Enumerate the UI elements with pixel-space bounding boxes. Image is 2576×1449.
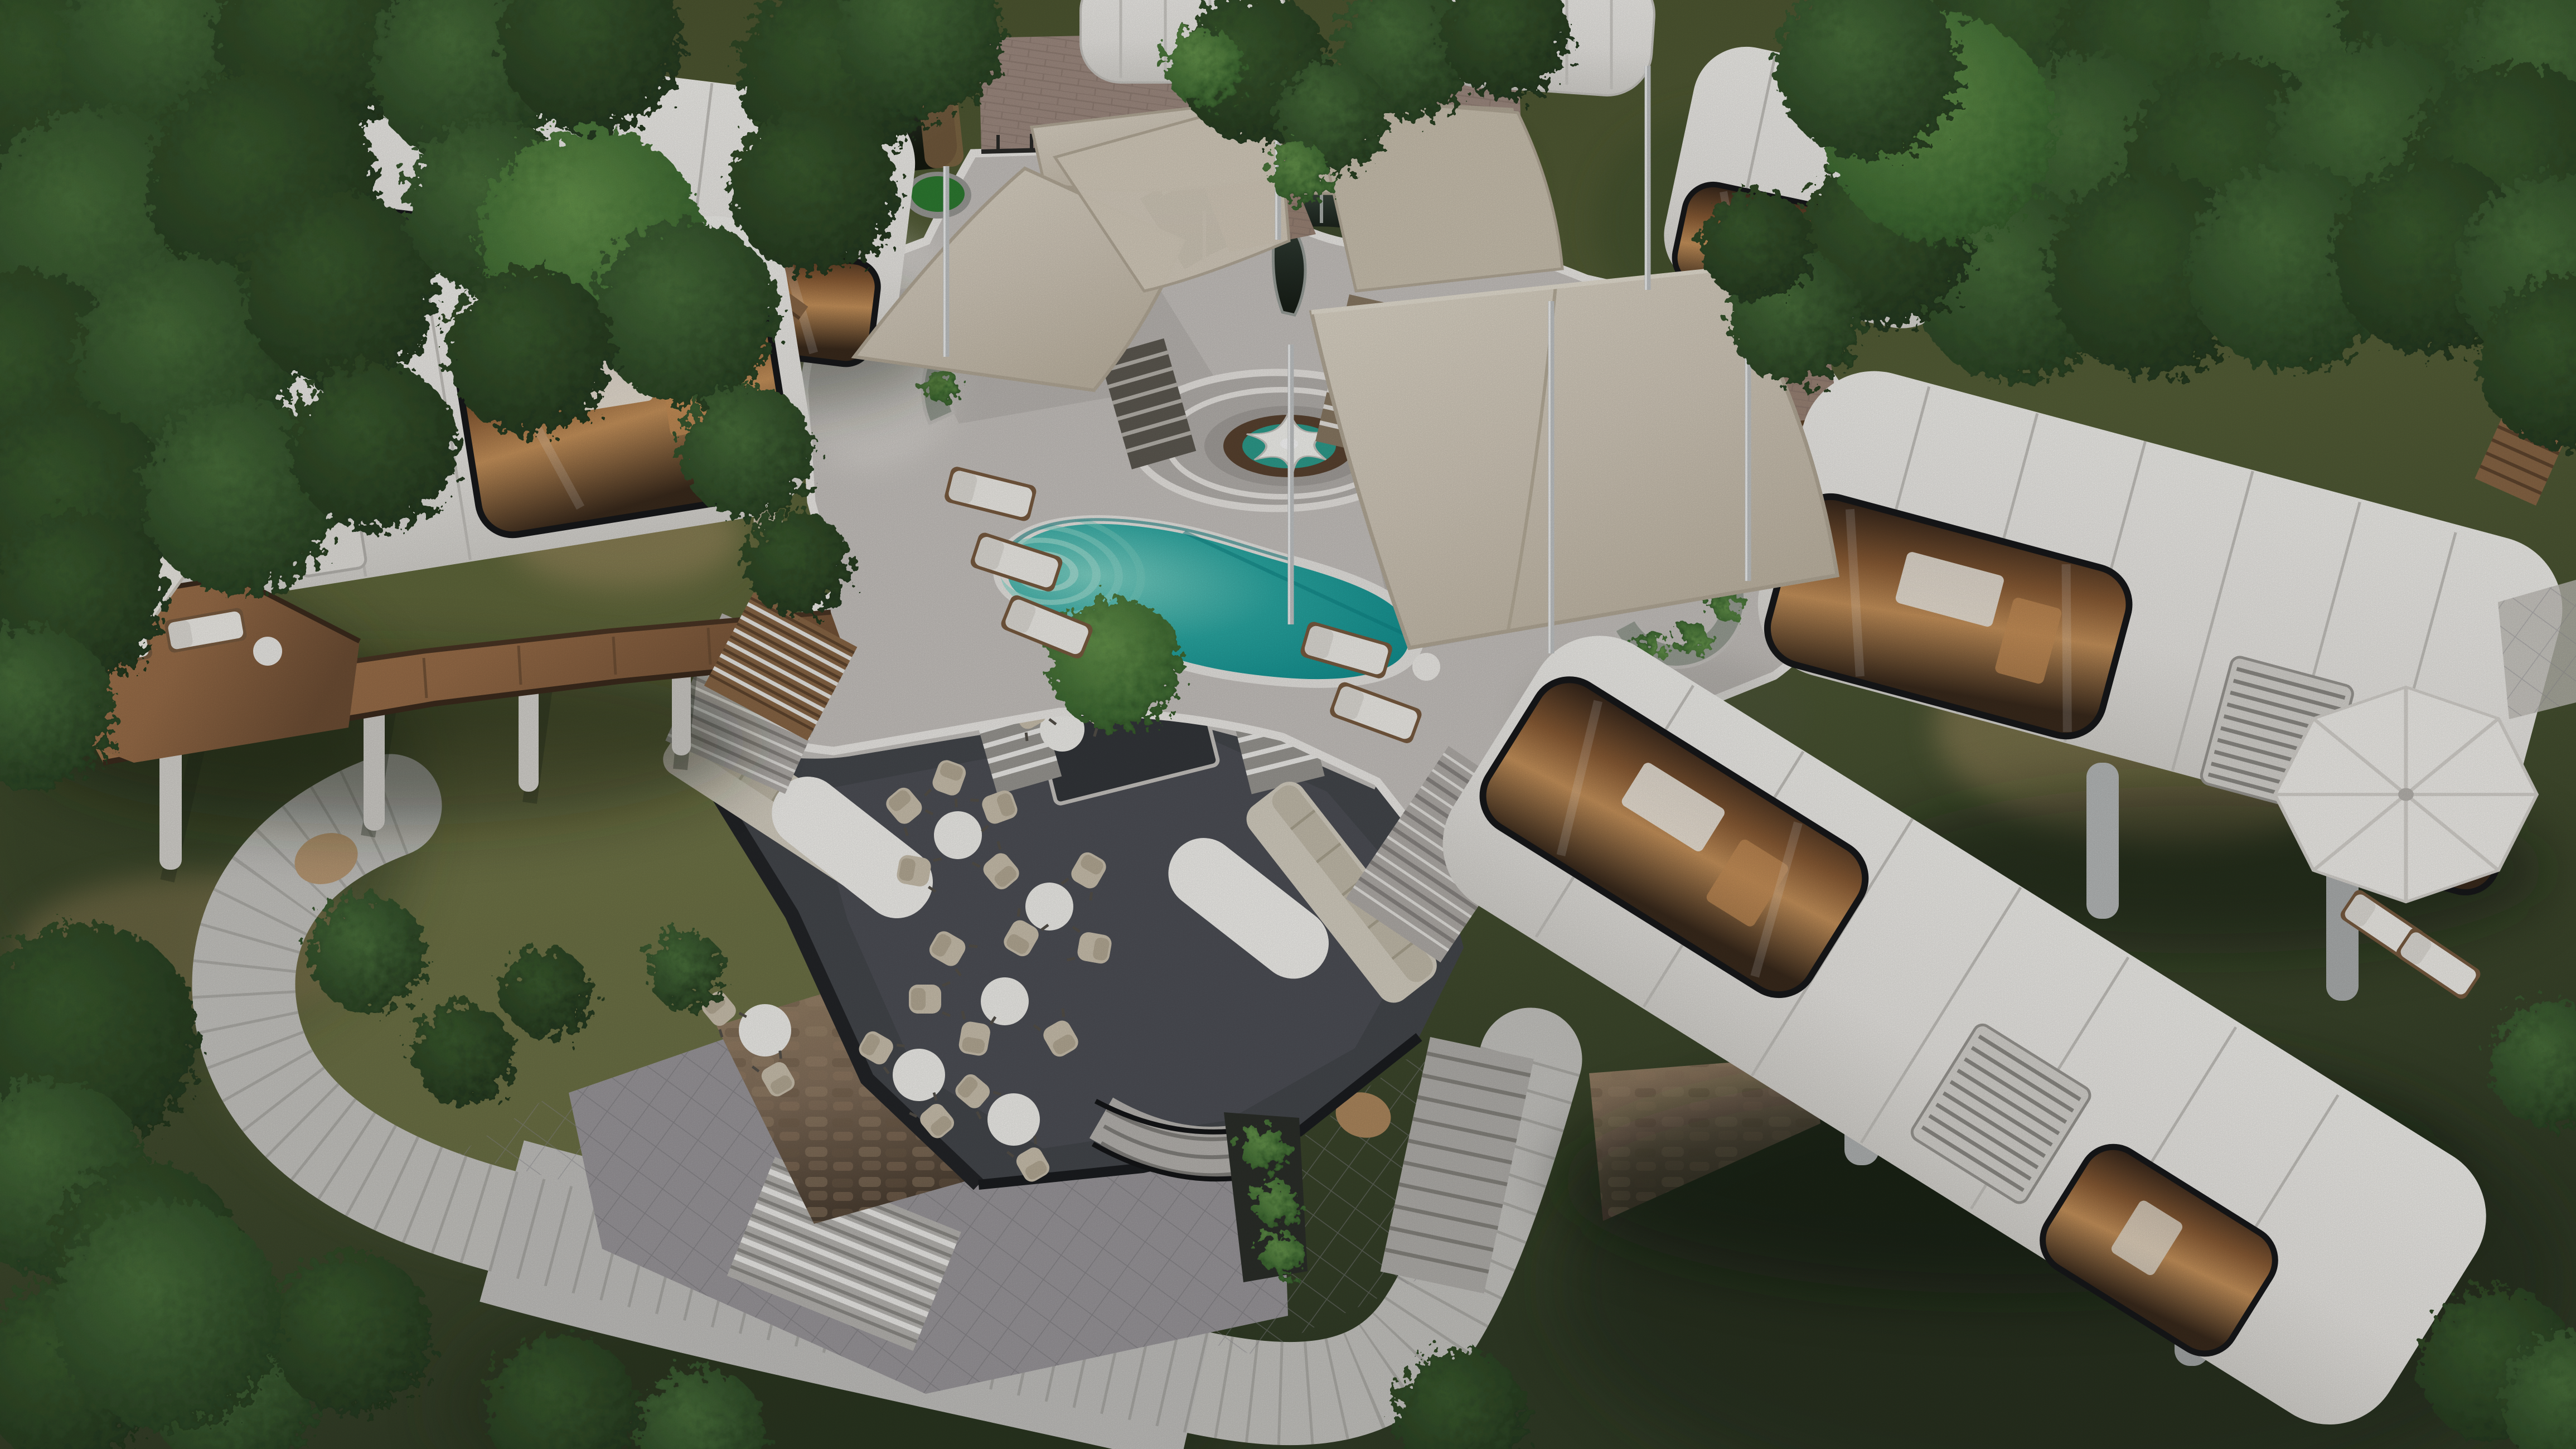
film-grain <box>0 0 2576 1449</box>
aerial-photo-canvas <box>0 0 2576 1449</box>
